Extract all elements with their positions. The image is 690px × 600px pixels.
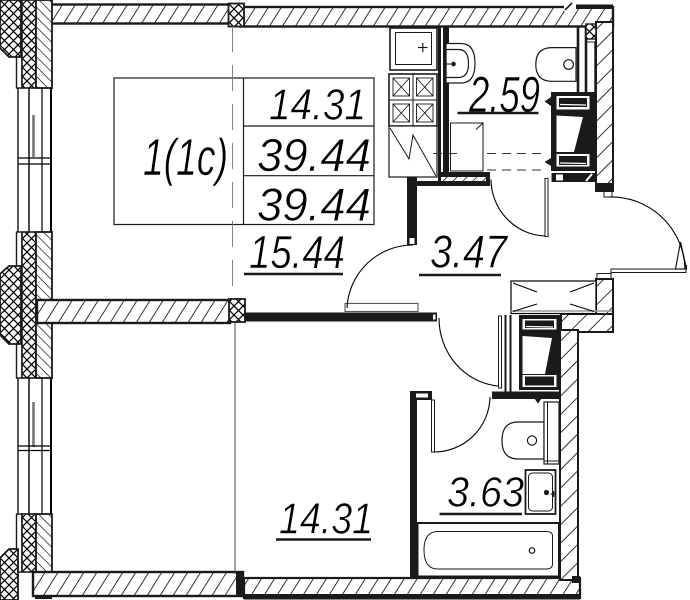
svg-text:14.31: 14.31 bbox=[269, 82, 366, 130]
svg-text:14.31: 14.31 bbox=[279, 495, 373, 544]
svg-text:3.63: 3.63 bbox=[447, 469, 524, 517]
svg-text:39.44: 39.44 bbox=[257, 129, 371, 181]
svg-text:1(1c): 1(1c) bbox=[143, 129, 228, 187]
svg-text:39.44: 39.44 bbox=[257, 179, 371, 231]
svg-text:3.47: 3.47 bbox=[430, 226, 508, 278]
svg-text:2.59: 2.59 bbox=[468, 66, 540, 123]
svg-text:15.44: 15.44 bbox=[249, 226, 345, 278]
